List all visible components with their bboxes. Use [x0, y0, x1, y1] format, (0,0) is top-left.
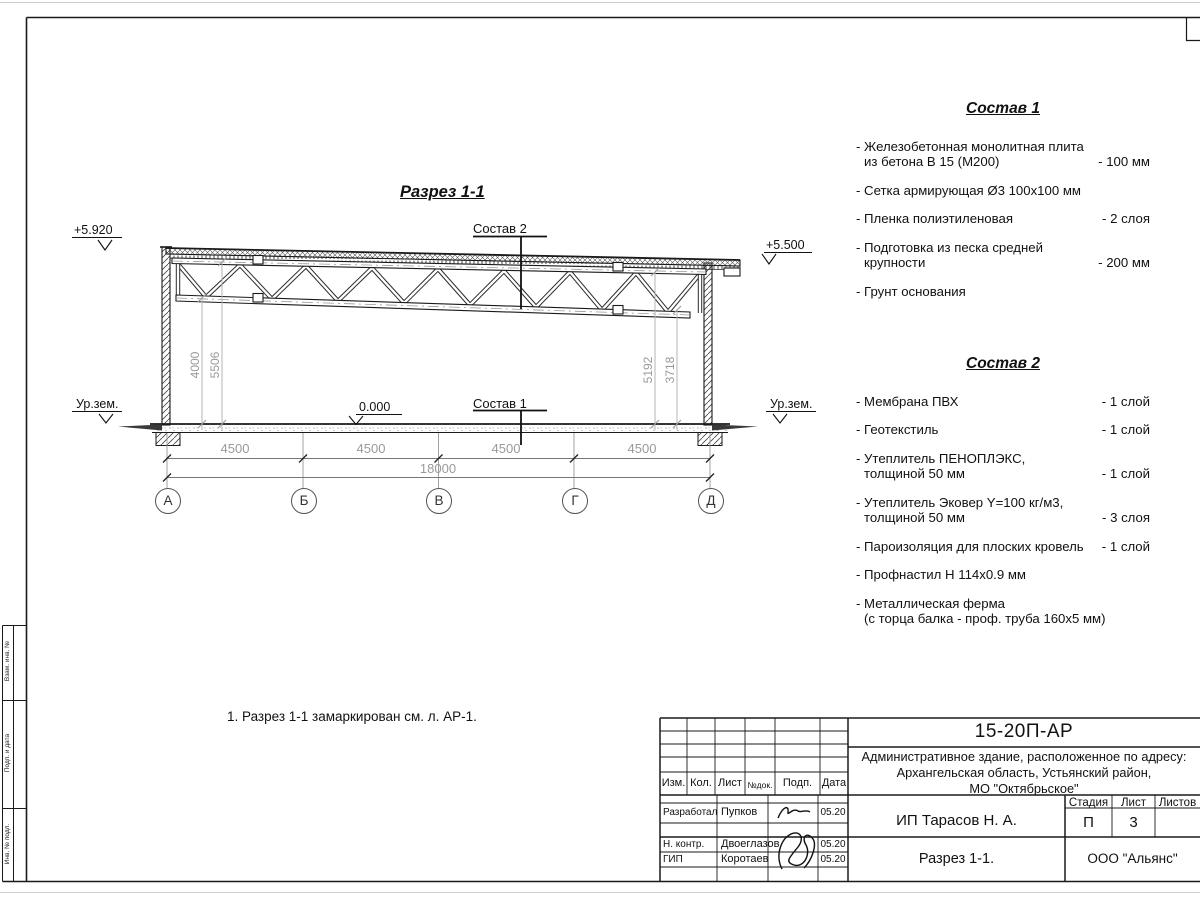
composition-1-list: Состав 1 - Железобетонная монолитная пли…: [856, 101, 1150, 312]
list-item: - Грунт основания: [856, 284, 1150, 300]
composition-1-title: Состав 1: [856, 101, 1150, 117]
sheets-label: Листов: [1155, 797, 1200, 809]
list-item: - Железобетонная монолитная плитаиз бето…: [856, 139, 1150, 170]
axis-bubble-b: Б: [291, 488, 317, 514]
list-item: - Пароизоляция для плоских кровель - 1 с…: [856, 539, 1150, 555]
date-nkontr: 05.20: [818, 839, 848, 850]
leader-label-floor: Состав 1: [473, 396, 527, 411]
name-gip: Коротаев: [721, 853, 769, 865]
list-item: - Сетка армирующая Ø3 100х100 мм: [856, 183, 1150, 199]
axis-bubble-v: В: [426, 488, 452, 514]
project-description: Административное здание, расположенное п…: [850, 749, 1198, 797]
role-gip: ГИП: [663, 854, 683, 865]
dim-vert-3718: 3718: [663, 338, 677, 402]
name-nkontr: Двоеглазов: [721, 838, 779, 850]
col-izm: Изм.: [660, 777, 687, 789]
list-item: - Профнастил Н 114х0.9 мм: [856, 567, 1150, 583]
axis-bubble-a: А: [155, 488, 181, 514]
dim-vert-5192: 5192: [641, 338, 655, 402]
axis-bubble-g: Г: [562, 488, 588, 514]
section-title: Разрез 1-1: [400, 183, 485, 202]
role-nkontr: Н. контр.: [663, 839, 704, 850]
sheet-title: Разрез 1-1.: [848, 851, 1065, 867]
list-item: - Подготовка из песка среднейкрупности -…: [856, 240, 1150, 271]
dim-vert-5506: 5506: [208, 333, 222, 397]
signature-gip: [779, 833, 814, 869]
composition-2-list: Состав 2 - Мембрана ПВХ - 1 слой - Геоте…: [856, 356, 1150, 640]
axis-bubble-d: Д: [698, 488, 724, 514]
roof-end-plate: [724, 268, 740, 276]
client-name: ИП Тарасов Н. А.: [848, 812, 1065, 829]
side-stamp-vzam: Взам. инв. №: [4, 626, 11, 696]
col-list: Лист: [715, 777, 745, 789]
left-foundation: [156, 433, 180, 446]
role-razrabotal: Разработал: [663, 807, 717, 818]
doc-number: 15-20П-АР: [848, 721, 1200, 743]
col-ndoc: №док.: [745, 780, 775, 790]
left-column: [162, 247, 170, 425]
elevation-top-right: +5.500: [766, 238, 805, 252]
list-item: - Утеплитель Эковер Y=100 кг/м3,толщиной…: [856, 495, 1150, 526]
sheet-label: Лист: [1112, 797, 1155, 809]
name-razrabotal: Пупков: [721, 806, 757, 818]
leader-label-roof: Состав 2: [473, 221, 527, 236]
col-data: Дата: [820, 777, 848, 789]
stage-label: Стадия: [1065, 797, 1112, 809]
col-podp: Подп.: [775, 777, 820, 789]
list-item: - Металлическая ферма(с торца балка - пр…: [856, 596, 1150, 627]
ground-level-left: Ур.зем.: [76, 397, 118, 411]
corner-box: [1187, 18, 1200, 41]
composition-2-title: Состав 2: [856, 356, 1150, 372]
date-gip: 05.20: [818, 854, 848, 865]
col-kol: Кол.: [687, 777, 715, 789]
list-item: - Пленка полиэтиленовая - 2 слоя: [856, 211, 1150, 227]
elevation-top-left: +5.920: [74, 223, 113, 237]
dim-bay-1: 4500: [205, 441, 265, 456]
list-item: - Утеплитель ПЕНОПЛЭКС,толщиной 50 мм - …: [856, 451, 1150, 482]
dim-total: 18000: [403, 461, 473, 476]
signatures: [778, 808, 814, 869]
side-stamp-inv: Инв. № подл.: [4, 810, 11, 878]
list-item: - Мембрана ПВХ - 1 слой: [856, 394, 1150, 410]
stage-value: П: [1065, 814, 1112, 831]
drawing-note: 1. Разрез 1-1 замаркирован см. л. АР-1.: [227, 709, 477, 724]
right-column: [704, 263, 712, 425]
drawing-sheet: Разрез 1-1 1. Разрез 1-1 замаркирован см…: [0, 0, 1200, 900]
dim-bay-4: 4500: [612, 441, 672, 456]
elevation-zero: 0.000: [359, 400, 390, 414]
side-stamp-podp: Подп. и дата: [4, 701, 11, 805]
signature-razrabotal: [778, 808, 810, 818]
dim-bay-2: 4500: [341, 441, 401, 456]
dim-vert-4000: 4000: [188, 333, 202, 397]
sheet-number: 3: [1112, 814, 1155, 831]
list-item: - Геотекстиль - 1 слой: [856, 422, 1150, 438]
date-razrabotal: 05.20: [818, 807, 848, 818]
ground-level-right: Ур.зем.: [770, 397, 812, 411]
dim-bay-3: 4500: [476, 441, 536, 456]
organization-name: ООО "Альянс": [1065, 851, 1200, 866]
